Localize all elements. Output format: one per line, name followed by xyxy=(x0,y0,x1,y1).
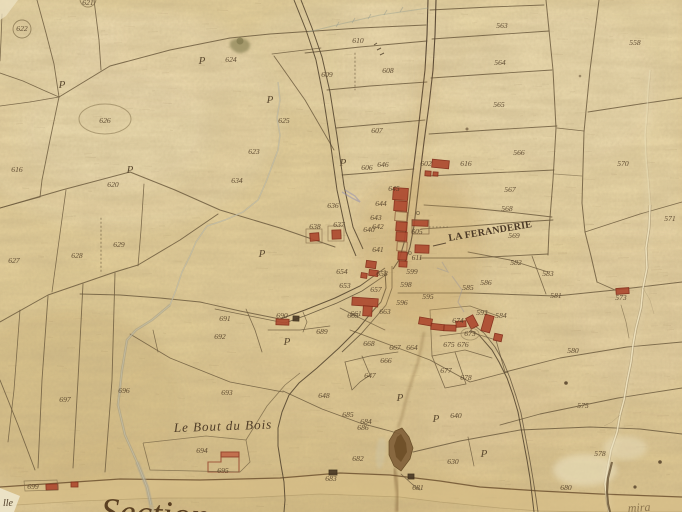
svg-text:606: 606 xyxy=(361,163,373,172)
svg-text:668: 668 xyxy=(363,339,375,348)
svg-text:694: 694 xyxy=(196,446,208,455)
svg-text:666: 666 xyxy=(380,356,392,365)
svg-text:634: 634 xyxy=(231,176,243,185)
svg-text:673: 673 xyxy=(464,329,476,338)
svg-text:584: 584 xyxy=(495,311,507,320)
svg-text:570: 570 xyxy=(617,159,629,168)
svg-text:566: 566 xyxy=(513,148,525,157)
svg-text:P: P xyxy=(126,164,134,176)
svg-text:609: 609 xyxy=(321,70,333,79)
svg-text:610: 610 xyxy=(352,36,364,45)
svg-text:595: 595 xyxy=(422,292,434,301)
svg-text:641: 641 xyxy=(372,245,383,254)
svg-text:568: 568 xyxy=(501,204,513,213)
svg-text:P: P xyxy=(198,55,206,67)
svg-text:638: 638 xyxy=(309,222,321,231)
svg-text:640: 640 xyxy=(363,225,375,234)
svg-text:581: 581 xyxy=(550,291,561,300)
svg-text:571: 571 xyxy=(664,214,675,223)
svg-text:696: 696 xyxy=(118,386,130,395)
svg-text:625: 625 xyxy=(278,116,290,125)
svg-text:P: P xyxy=(283,336,291,348)
svg-text:653: 653 xyxy=(339,281,351,290)
svg-text:690: 690 xyxy=(276,311,288,320)
svg-text:636: 636 xyxy=(327,201,339,210)
svg-text:P: P xyxy=(58,79,66,91)
svg-text:686: 686 xyxy=(357,423,369,432)
svg-text:565: 565 xyxy=(493,100,505,109)
svg-text:582: 582 xyxy=(510,258,522,267)
svg-text:598: 598 xyxy=(400,280,412,289)
svg-text:628: 628 xyxy=(71,251,83,260)
svg-text:689: 689 xyxy=(316,327,328,336)
svg-text:616: 616 xyxy=(460,159,472,168)
svg-text:645: 645 xyxy=(388,184,400,193)
svg-text:654: 654 xyxy=(336,267,348,276)
svg-text:685: 685 xyxy=(342,410,354,419)
svg-text:605: 605 xyxy=(411,227,423,236)
svg-text:616: 616 xyxy=(11,165,23,174)
svg-text:640: 640 xyxy=(450,411,462,420)
svg-text:691: 691 xyxy=(219,314,230,323)
svg-text:607: 607 xyxy=(371,126,384,135)
svg-text:629: 629 xyxy=(113,240,125,249)
svg-text:P: P xyxy=(432,413,440,425)
svg-text:P: P xyxy=(339,157,347,169)
svg-text:647: 647 xyxy=(364,371,377,380)
svg-text:648: 648 xyxy=(318,391,330,400)
svg-text:677: 677 xyxy=(440,366,453,375)
svg-text:661: 661 xyxy=(350,309,361,318)
svg-text:680: 680 xyxy=(560,483,572,492)
svg-text:608: 608 xyxy=(382,66,394,75)
svg-text:657: 657 xyxy=(370,285,383,294)
svg-text:683: 683 xyxy=(325,474,337,483)
svg-text:623: 623 xyxy=(248,147,260,156)
svg-text:lle: lle xyxy=(3,498,14,509)
svg-text:682: 682 xyxy=(352,454,364,463)
svg-text:611: 611 xyxy=(412,253,423,262)
svg-text:676: 676 xyxy=(457,340,469,349)
svg-text:P: P xyxy=(480,448,488,460)
svg-text:575: 575 xyxy=(577,401,589,410)
svg-text:558: 558 xyxy=(629,38,641,47)
svg-text:663: 663 xyxy=(379,307,391,316)
svg-text:699: 699 xyxy=(27,482,39,491)
svg-text:667: 667 xyxy=(389,343,402,352)
svg-text:P: P xyxy=(396,392,404,404)
svg-text:578: 578 xyxy=(594,449,606,458)
svg-text:693: 693 xyxy=(221,388,233,397)
svg-text:580: 580 xyxy=(567,346,579,355)
svg-text:593: 593 xyxy=(476,308,488,317)
svg-text:637: 637 xyxy=(333,220,346,229)
svg-text:596: 596 xyxy=(396,298,408,307)
svg-text:658: 658 xyxy=(376,269,388,278)
svg-text:622: 622 xyxy=(16,24,28,33)
svg-text:586: 586 xyxy=(480,278,492,287)
svg-text:620: 620 xyxy=(107,180,119,189)
svg-text:697: 697 xyxy=(59,395,72,404)
svg-text:664: 664 xyxy=(406,343,418,352)
svg-text:692: 692 xyxy=(214,332,226,341)
svg-text:681: 681 xyxy=(412,483,423,492)
svg-text:mira: mira xyxy=(627,500,650,512)
svg-text:630: 630 xyxy=(447,457,459,466)
svg-text:599: 599 xyxy=(406,267,418,276)
svg-text:624: 624 xyxy=(225,55,237,64)
svg-text:585: 585 xyxy=(462,283,474,292)
svg-text:583: 583 xyxy=(542,269,554,278)
svg-text:P: P xyxy=(266,94,274,106)
svg-text:626: 626 xyxy=(99,116,111,125)
svg-text:646: 646 xyxy=(377,160,389,169)
svg-text:602: 602 xyxy=(420,159,432,168)
svg-text:644: 644 xyxy=(375,199,387,208)
svg-text:674: 674 xyxy=(452,316,464,325)
svg-text:695: 695 xyxy=(217,466,229,475)
svg-text:563: 563 xyxy=(496,21,508,30)
svg-text:567: 567 xyxy=(504,185,517,194)
svg-text:573: 573 xyxy=(615,293,627,302)
svg-text:564: 564 xyxy=(494,58,506,67)
svg-text:627: 627 xyxy=(8,256,21,265)
svg-text:678: 678 xyxy=(460,373,472,382)
svg-text:643: 643 xyxy=(370,213,382,222)
svg-text:P: P xyxy=(258,248,266,260)
svg-text:675: 675 xyxy=(443,340,455,349)
